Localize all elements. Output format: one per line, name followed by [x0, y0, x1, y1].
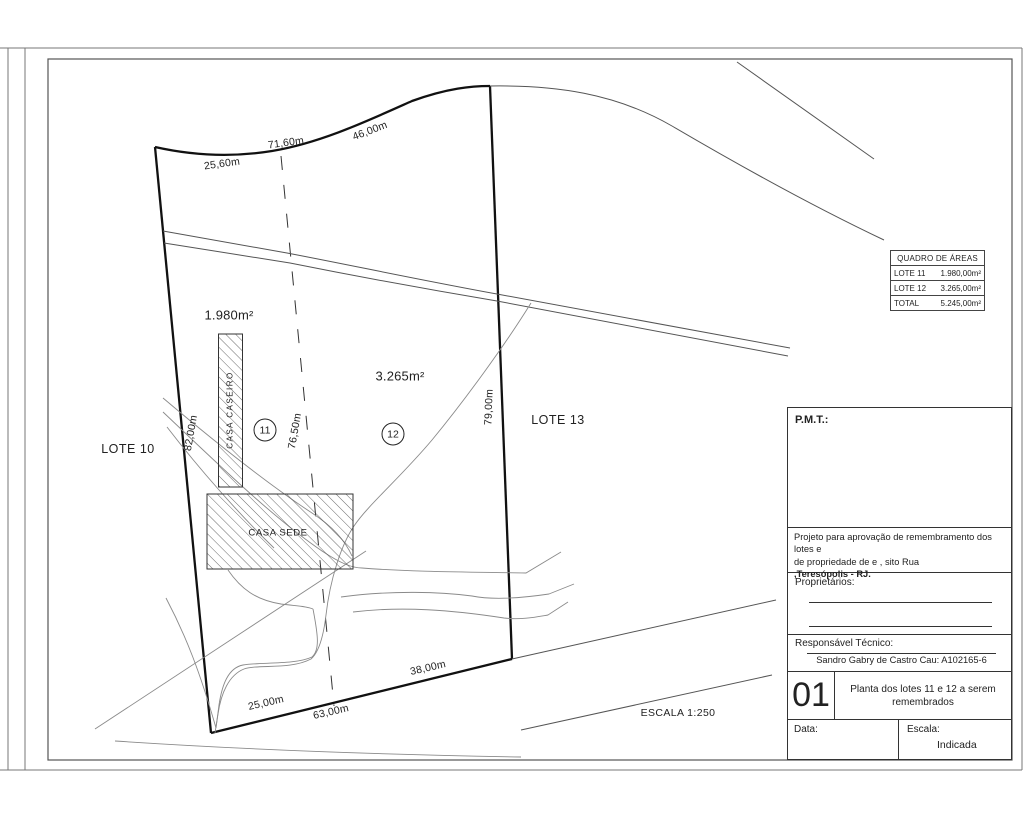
areas-table-title: QUADRO DE ÁREAS — [891, 251, 984, 266]
casa-sede-label: CASA SEDE — [248, 528, 307, 539]
casa-caseiro-label: CASA CASEIRO — [226, 371, 235, 449]
responsible-section: Responsável Técnico: Sandro Gabry de Cas… — [788, 635, 1011, 672]
lot11-number-bubble: 11 — [254, 419, 277, 442]
row-label: TOTAL — [894, 299, 919, 308]
sheet-number: 01 — [788, 672, 835, 720]
scale-note: ESCALA 1:250 — [641, 707, 716, 719]
date-scale-section: Data: Escala: Indicada — [788, 720, 1011, 759]
lot12-area-label: 3.265m² — [375, 369, 424, 384]
lote13-label: LOTE 13 — [531, 413, 585, 427]
pmt-label: P.M.T.: — [795, 414, 828, 426]
lote10-label: LOTE 10 — [101, 442, 155, 456]
drawing-sheet: 25,60m 71,60m 46,00m 82,00m 76,50m 79,00… — [0, 0, 1024, 819]
owner-signature-line — [809, 588, 992, 603]
sheet-title-line2: remembrados — [892, 696, 954, 709]
sheet-title-line1: Planta dos lotes 11 e 12 a serem — [850, 683, 995, 696]
sheet-number-section: 01 Planta dos lotes 11 e 12 a serem reme… — [788, 672, 1011, 721]
row-value: 1.980,00m² — [941, 269, 981, 278]
lot11-area-label: 1.980m² — [204, 308, 253, 323]
description-line2: de propriedade de e , sito Rua — [794, 556, 1005, 568]
description-line1: Projeto para aprovação de remembramento … — [794, 531, 1005, 556]
responsible-name: Sandro Gabry de Castro Cau: A102165-6 — [807, 653, 996, 665]
row-label: LOTE 11 — [894, 269, 925, 278]
row-label: LOTE 12 — [894, 284, 926, 293]
pmt-section: P.M.T.: — [788, 408, 1011, 528]
scale-value: Indicada — [937, 739, 1003, 751]
date-label: Data: — [794, 724, 818, 735]
scale-label: Escala: — [907, 724, 1003, 735]
owners-label: Proprietários: — [795, 577, 1004, 588]
lot12-number-bubble: 12 — [382, 423, 405, 446]
scale-cell: Escala: Indicada — [899, 720, 1011, 759]
sheet-title: Planta dos lotes 11 e 12 a serem remembr… — [835, 672, 1011, 720]
areas-table: QUADRO DE ÁREAS LOTE 11 1.980,00m² LOTE … — [890, 250, 985, 311]
row-value: 5.245,00m² — [941, 299, 981, 308]
date-cell: Data: — [788, 720, 899, 759]
dimension-right: 79,00m — [482, 389, 495, 426]
owners-section: Proprietários: — [788, 573, 1011, 635]
table-row: LOTE 12 3.265,00m² — [891, 281, 984, 296]
responsible-label: Responsável Técnico: — [795, 638, 1004, 649]
road-lines — [163, 62, 884, 730]
owner-signature-line — [809, 612, 992, 627]
project-description-section: Projeto para aprovação de remembramento … — [788, 528, 1011, 573]
table-row: TOTAL 5.245,00m² — [891, 296, 984, 310]
table-row: LOTE 11 1.980,00m² — [891, 266, 984, 281]
title-block: P.M.T.: Projeto para aprovação de rememb… — [787, 407, 1012, 760]
lot-boundary — [155, 86, 512, 733]
row-value: 3.265,00m² — [941, 284, 981, 293]
